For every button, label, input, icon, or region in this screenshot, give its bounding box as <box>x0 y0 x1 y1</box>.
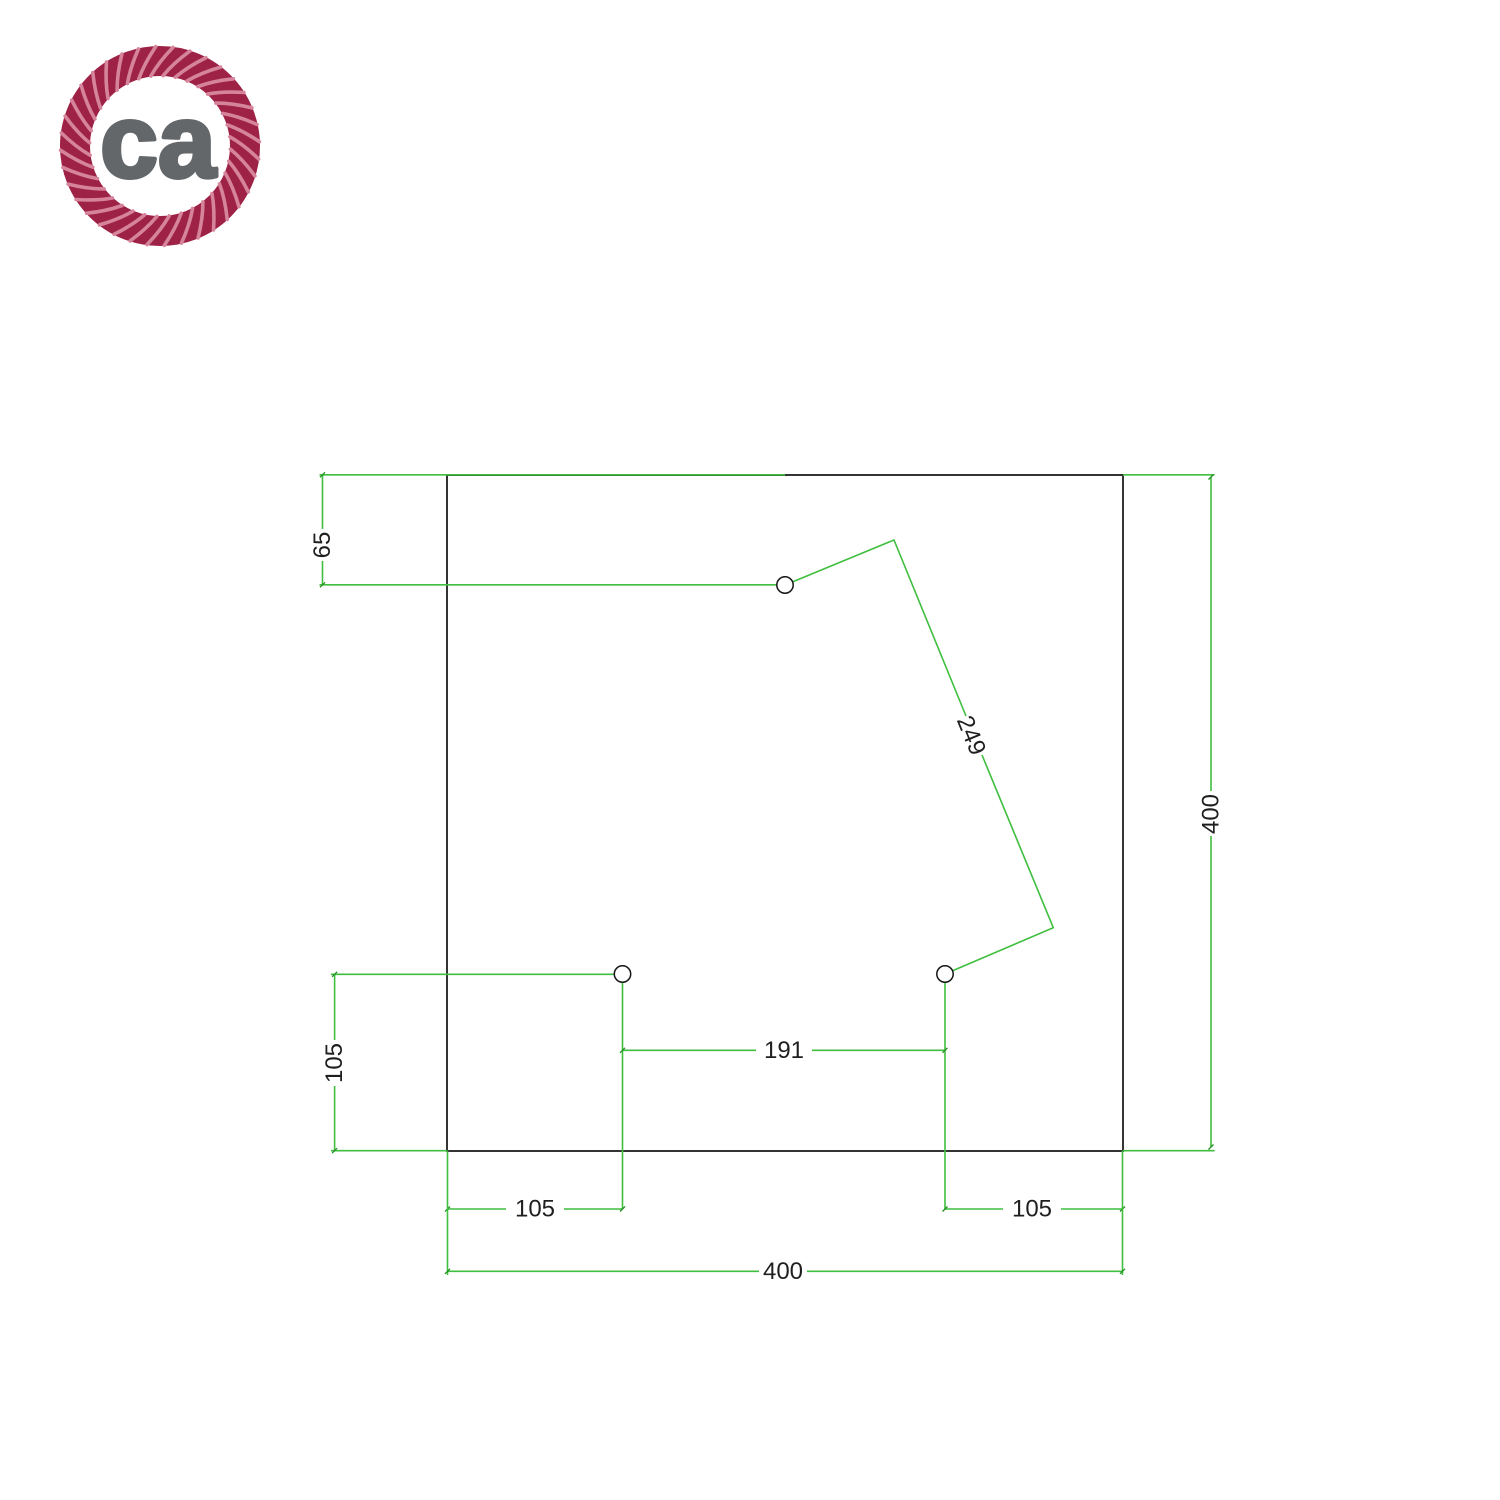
svg-text:105: 105 <box>515 1196 555 1223</box>
svg-text:65: 65 <box>309 532 336 559</box>
svg-text:249: 249 <box>951 712 991 759</box>
svg-text:400: 400 <box>1198 794 1225 834</box>
svg-text:191: 191 <box>764 1037 804 1064</box>
svg-text:ca: ca <box>100 84 217 200</box>
svg-text:105: 105 <box>321 1043 348 1083</box>
svg-text:105: 105 <box>1012 1196 1052 1223</box>
svg-text:400: 400 <box>763 1258 803 1285</box>
